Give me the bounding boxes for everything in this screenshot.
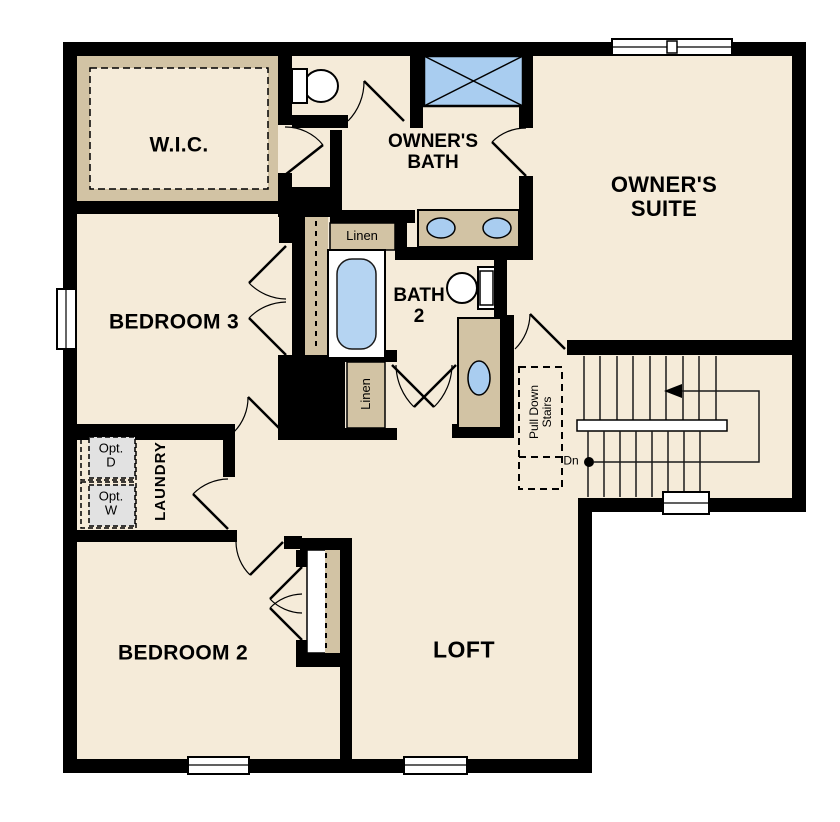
bedroom2-window (188, 757, 249, 774)
opt-dryer-label: Opt. D (99, 442, 124, 471)
wic-floor (90, 68, 268, 189)
wall-laundry-north (63, 424, 235, 436)
bathtub-icon (328, 250, 385, 358)
wall-bedroom3-east-lower (279, 357, 293, 440)
opt-washer-label-line2: W (99, 504, 124, 518)
wall-bedroom3-east-upper (279, 214, 293, 243)
opt-dryer-label-line1: Opt. (99, 442, 124, 456)
bath2-label-line2: 2 (393, 307, 444, 328)
linen-lower-label: Linen (359, 378, 373, 410)
owners-bath-label: OWNER'S BATH (388, 132, 478, 174)
wall-bedroom2-north (63, 530, 237, 542)
wall-wc-shower-divider (410, 49, 423, 128)
owners-suite-label-line1: OWNER'S (611, 173, 717, 197)
floor-plan-drawing (0, 0, 840, 822)
wall-bath2-north (395, 247, 533, 260)
shower-icon (424, 56, 523, 106)
wall-bedroom2-east (340, 538, 352, 759)
wall-outer-bottom (63, 759, 592, 773)
opt-washer-label: Opt. W (99, 490, 124, 519)
bedroom2-label: BEDROOM 2 (118, 641, 248, 664)
wic-label: W.I.C. (150, 133, 209, 156)
toilet-icon (292, 69, 338, 103)
sink-icon (483, 218, 511, 238)
loft-label: LOFT (433, 637, 495, 662)
loft-window (404, 757, 467, 774)
wall-vanity2-east (501, 315, 514, 430)
wall-vestibule-east (330, 130, 342, 201)
owners-suite-window (612, 39, 732, 55)
sink-icon (468, 361, 490, 395)
stair-down-marker-dot (584, 457, 594, 467)
wall-chase-west (292, 217, 305, 355)
pull-down-stairs-label-line2: Stairs (541, 385, 554, 439)
bedroom3-window (57, 289, 76, 349)
bedroom3-label: BEDROOM 3 (109, 310, 239, 333)
stairs-down-label: Dn (563, 454, 578, 467)
laundry-label: LAUNDRY (153, 441, 170, 521)
wall-outer-left (63, 42, 77, 773)
double-vanity (418, 210, 519, 247)
wall-outer-right (792, 42, 806, 512)
owners-bath-label-line1: OWNER'S (388, 132, 478, 153)
owners-bath-label-line2: BATH (388, 153, 478, 174)
owners-suite-label-line2: SUITE (611, 197, 717, 221)
bath2-label-line1: BATH (393, 286, 444, 307)
wall-laundry-east (223, 424, 235, 477)
pull-down-stairs-label: Pull Down Stairs (528, 385, 554, 439)
wall-wic-east-upper (278, 56, 292, 125)
sink-icon (427, 218, 455, 238)
wall-linen-upper-right (395, 223, 407, 250)
stair-stringer (577, 420, 727, 431)
wall-suite-south (567, 340, 806, 355)
owners-suite-label: OWNER'S SUITE (611, 173, 717, 221)
wall-bedroom2-north-stub (284, 536, 302, 549)
wall-wic-south (63, 201, 295, 214)
bedroom2-closet-shelf (325, 550, 340, 653)
stairwell-window (663, 492, 709, 514)
single-vanity (458, 318, 501, 428)
floor-plan: W.I.C. OWNER'S BATH OWNER'S SUITE BEDROO… (0, 0, 840, 822)
opt-dryer-label-line2: D (99, 456, 124, 470)
wall-closet-west-upper (296, 550, 307, 567)
wall-linen-lower-bottom (337, 428, 397, 440)
linen-upper-label: Linen (346, 229, 378, 243)
wall-loft-right (578, 498, 592, 773)
bath2-label: BATH 2 (393, 286, 444, 328)
wall-linen-upper-top (330, 210, 415, 223)
opt-washer-label-line1: Opt. (99, 490, 124, 504)
wall-wc-bottom (292, 115, 348, 128)
